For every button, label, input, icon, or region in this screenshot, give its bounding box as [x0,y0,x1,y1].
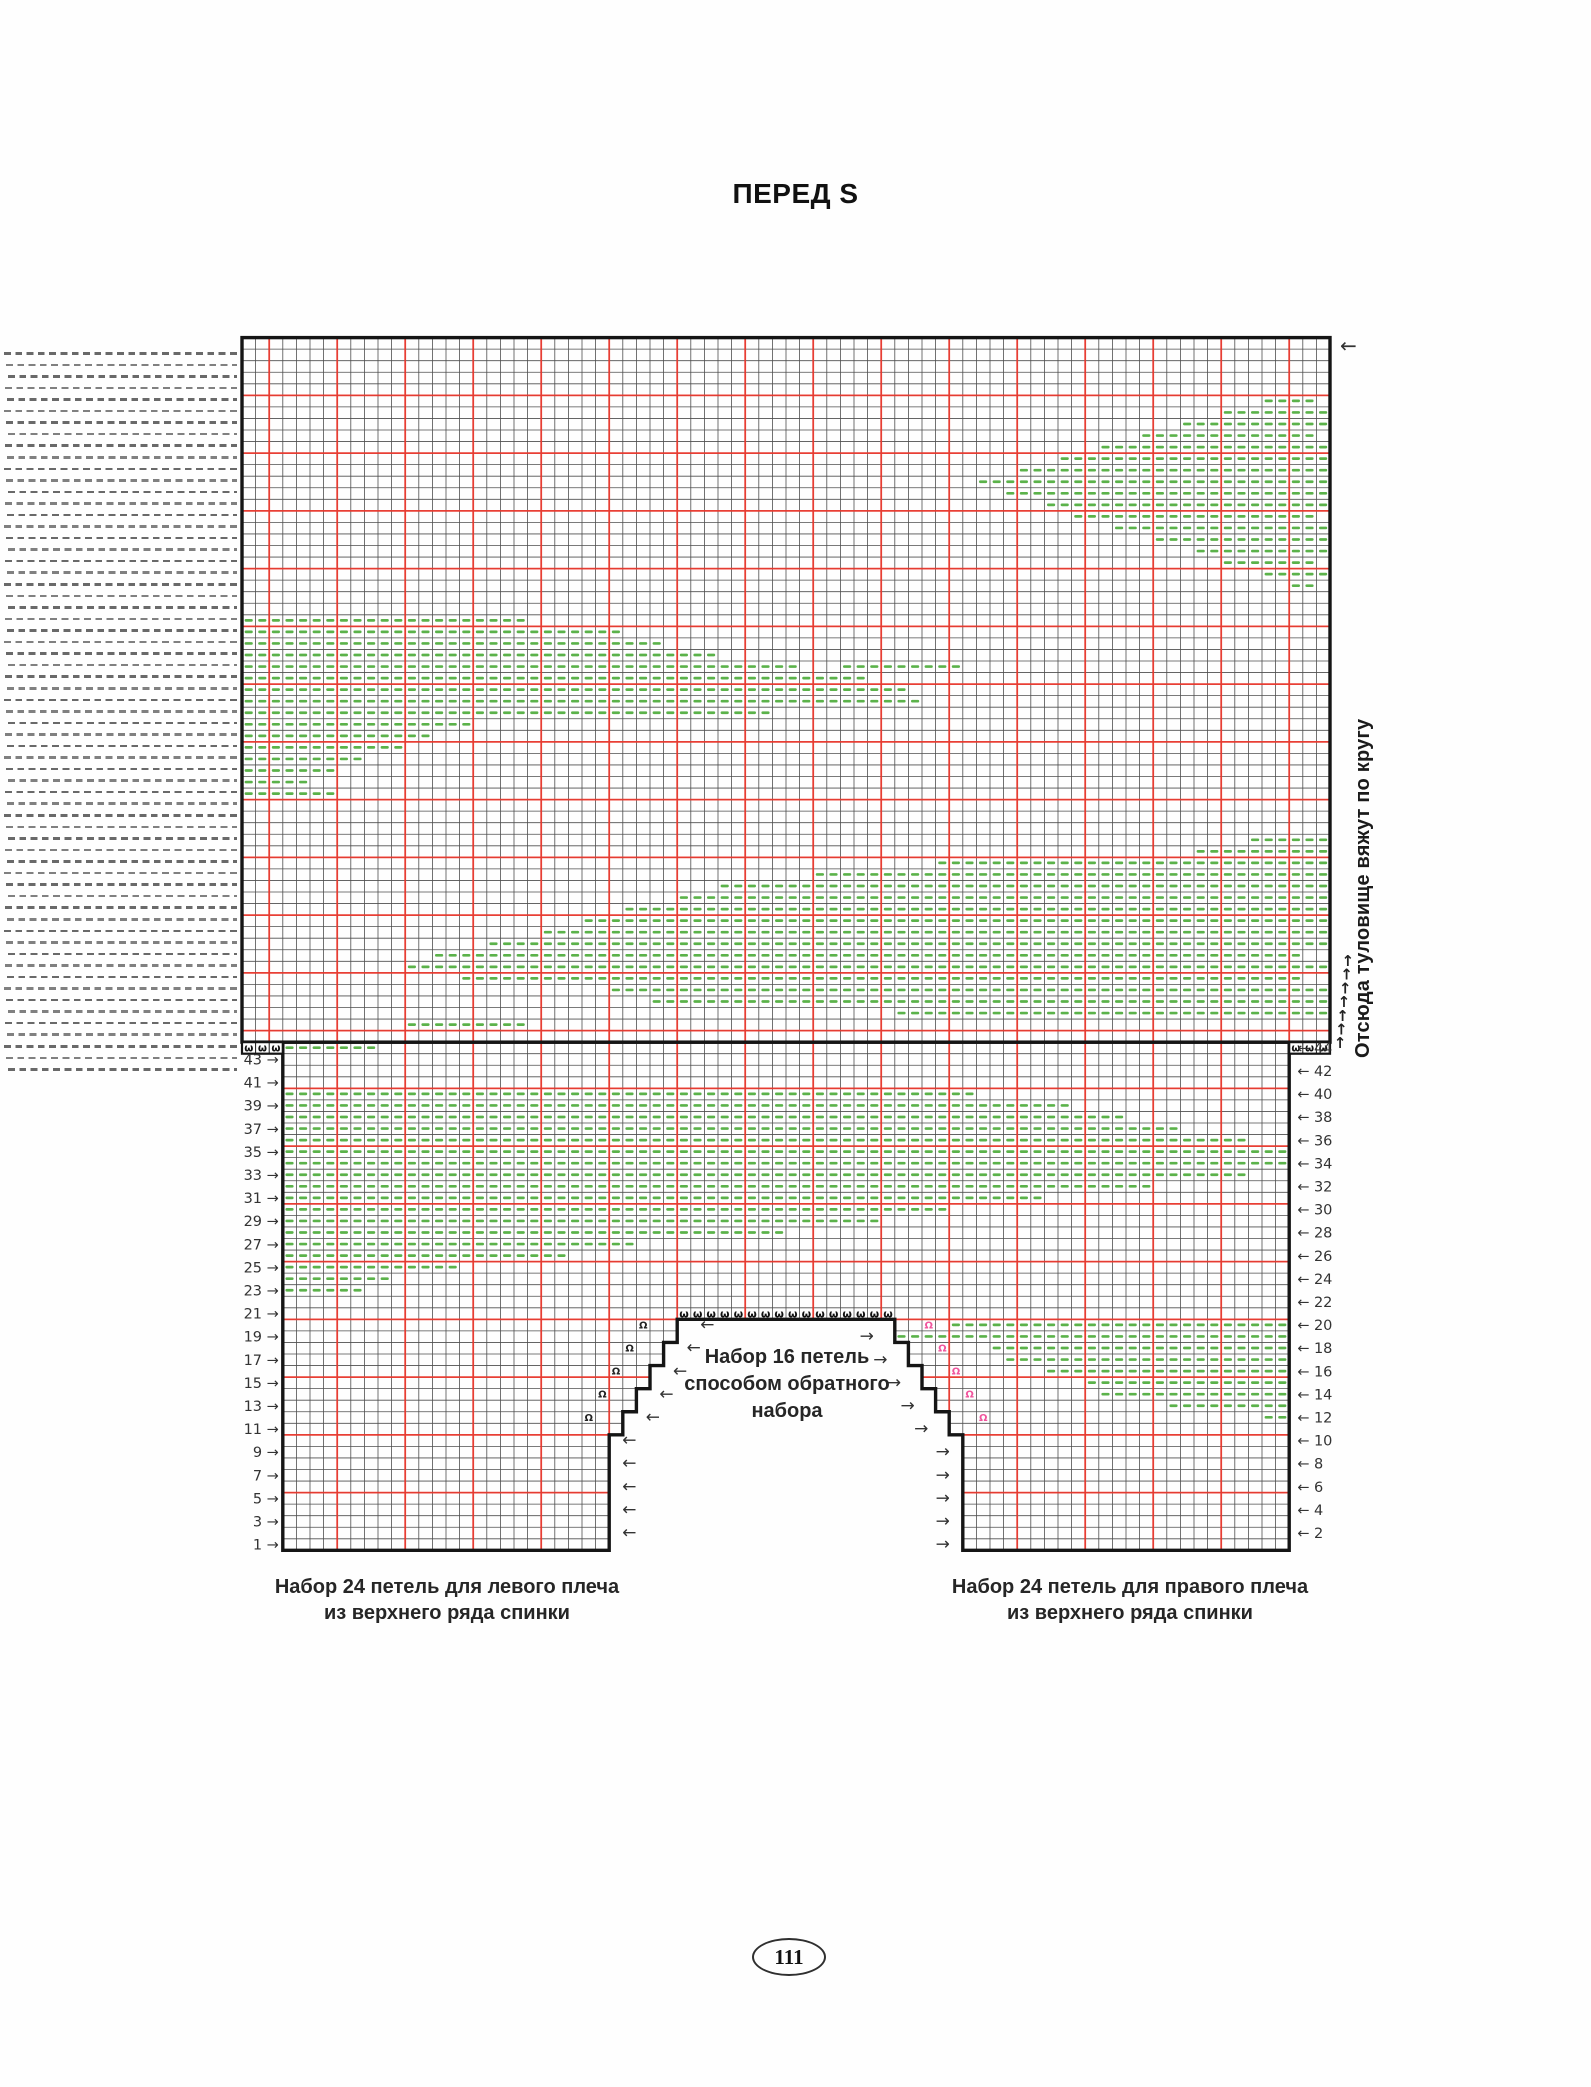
svg-text:Ω: Ω [925,1320,934,1331]
svg-text:ω: ω [747,1308,757,1321]
svg-text:5 →: 5 → [253,1491,279,1507]
svg-text:ω: ω [774,1308,784,1321]
svg-text:← 20: ← 20 [1297,1318,1332,1334]
svg-text:← 30: ← 30 [1297,1203,1332,1219]
svg-text:ω: ω [802,1308,812,1321]
svg-text:→: → [936,1465,950,1485]
svg-text:3 →: 3 → [253,1514,279,1530]
svg-text:15 →: 15 → [244,1376,279,1392]
svg-text:←: ← [700,1315,714,1335]
svg-text:← 6: ← 6 [1297,1480,1323,1496]
svg-text:Ω: Ω [585,1413,594,1424]
svg-text:Ω: Ω [625,1344,634,1355]
svg-text:Ω: Ω [938,1344,947,1355]
svg-text:9 →: 9 → [253,1445,279,1461]
svg-text:Ω: Ω [612,1367,621,1378]
svg-text:←: ← [622,1454,636,1474]
svg-text:ω: ω [883,1308,893,1321]
svg-text:← 26: ← 26 [1297,1249,1332,1265]
svg-text:41 →: 41 → [244,1076,279,1092]
svg-text:← 34: ← 34 [1297,1156,1332,1172]
row-numbers-left: 43 →41 →39 →37 →35 →33 →31 →29 →27 →25 →… [244,1052,279,1553]
svg-text:23 →: 23 → [244,1283,279,1299]
svg-text:13 →: 13 → [244,1399,279,1415]
svg-text:ω: ω [842,1308,852,1321]
svg-text:ω: ω [870,1308,880,1321]
svg-text:Ω: Ω [979,1413,988,1424]
svg-text:1 →: 1 → [253,1538,279,1554]
svg-text:27 →: 27 → [244,1237,279,1253]
top-direction-arrow: ← [1340,334,1357,358]
row-numbers-right: ← 44← 42← 40← 38← 36← 34← 32← 30← 28← 26… [1297,1041,1332,1542]
svg-text:17 →: 17 → [244,1353,279,1369]
svg-text:← 42: ← 42 [1297,1064,1332,1080]
svg-text:ω: ω [679,1308,689,1321]
knit-in-round-note: Отсюда туловище вяжут по кругу [1352,752,1375,1058]
svg-text:31 →: 31 → [244,1191,279,1207]
svg-text:←: ← [622,1523,636,1543]
svg-text:ω: ω [829,1308,839,1321]
svg-text:← 18: ← 18 [1297,1341,1332,1357]
page-number: 111 [752,1938,826,1976]
svg-text:ω: ω [788,1308,798,1321]
svg-text:Ω: Ω [952,1367,961,1378]
svg-text:35 →: 35 → [244,1145,279,1161]
svg-text:11 →: 11 → [244,1422,279,1438]
svg-text:← 22: ← 22 [1297,1295,1332,1311]
svg-text:ω: ω [720,1308,730,1321]
svg-text:← 32: ← 32 [1297,1180,1332,1196]
svg-text:← 24: ← 24 [1297,1272,1332,1288]
svg-text:← 44: ← 44 [1297,1041,1332,1057]
svg-text:← 4: ← 4 [1297,1503,1323,1519]
svg-text:33 →: 33 → [244,1168,279,1184]
svg-text:19 →: 19 → [244,1330,279,1346]
svg-text:← 40: ← 40 [1297,1087,1332,1103]
svg-text:→: → [936,1488,950,1508]
svg-text:ω: ω [761,1308,771,1321]
svg-text:Ω: Ω [598,1390,607,1401]
book-page: ПЕРЕД S ωωωωωωωωωωωωωωωωωωωωωωΩΩΩΩΩΩΩΩΩΩ… [0,0,1591,2087]
svg-text:Ω: Ω [965,1390,974,1401]
svg-text:← 12: ← 12 [1297,1411,1332,1427]
svg-text:21 →: 21 → [244,1307,279,1323]
left-shoulder-label: Набор 24 петель для левого плеча из верх… [247,1574,647,1626]
svg-text:← 14: ← 14 [1297,1387,1332,1403]
svg-text:ω: ω [734,1308,744,1321]
svg-text:← 38: ← 38 [1297,1110,1332,1126]
svg-text:25 →: 25 → [244,1260,279,1276]
svg-text:ω: ω [856,1308,866,1321]
svg-text:←: ← [622,1431,636,1451]
svg-text:Ω: Ω [639,1320,648,1331]
svg-text:←: ← [1340,334,1357,358]
svg-text:← 28: ← 28 [1297,1226,1332,1242]
svg-text:39 →: 39 → [244,1099,279,1115]
page-number-text: 111 [774,1945,803,1970]
svg-text:ω: ω [815,1308,825,1321]
svg-text:← 16: ← 16 [1297,1364,1332,1380]
svg-text:← 10: ← 10 [1297,1434,1332,1450]
svg-text:→: → [936,1535,950,1555]
svg-text:43 →: 43 → [244,1052,279,1068]
svg-text:←: ← [622,1500,636,1520]
svg-text:→: → [936,1511,950,1531]
svg-text:7 →: 7 → [253,1468,279,1484]
svg-text:←: ← [622,1477,636,1497]
svg-text:37 →: 37 → [244,1122,279,1138]
neck-caston-label: Набор 16 петель способом обратного набор… [637,1344,937,1425]
svg-text:← 8: ← 8 [1297,1457,1323,1473]
right-shoulder-label: Набор 24 петель для правого плеча из вер… [930,1574,1330,1626]
svg-text:29 →: 29 → [244,1214,279,1230]
svg-text:← 2: ← 2 [1297,1526,1323,1542]
svg-text:→: → [936,1442,950,1462]
svg-text:← 36: ← 36 [1297,1133,1332,1149]
